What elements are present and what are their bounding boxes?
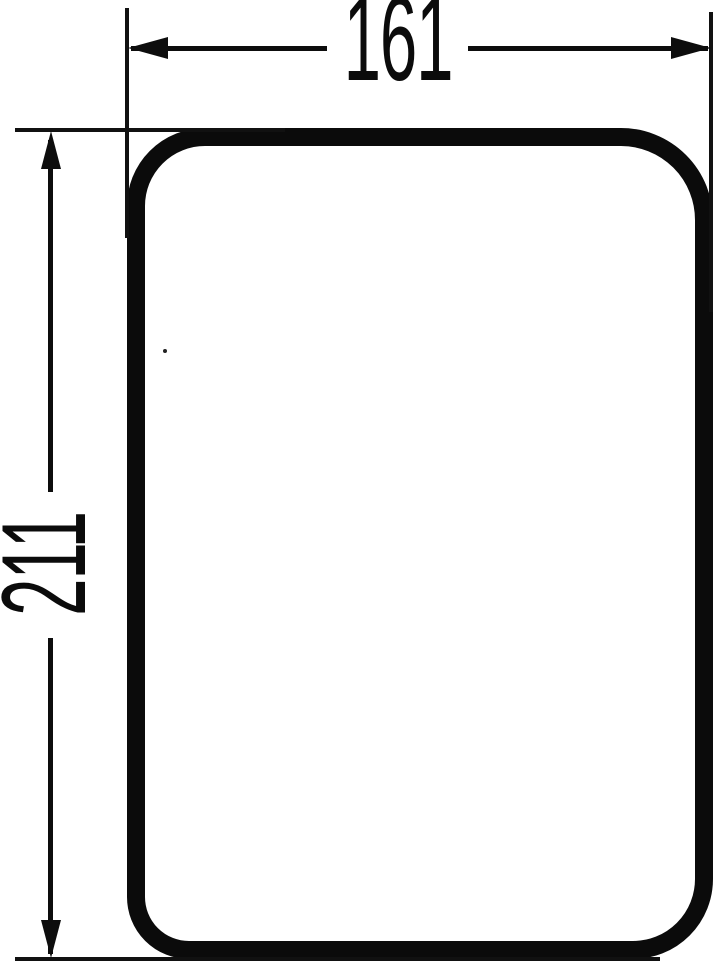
- height-dimension-line-top-segment: [48, 140, 53, 492]
- arrow-right-icon: [671, 37, 711, 59]
- height-dimension-line-bottom-segment: [48, 638, 53, 954]
- technical-drawing-canvas: 161 211: [0, 0, 720, 968]
- part-outline: [127, 128, 713, 959]
- height-dimension-label: 211: [0, 512, 104, 616]
- width-dimension-label: 161: [344, 0, 453, 99]
- arrow-up-icon: [41, 131, 61, 169]
- arrow-left-icon: [128, 37, 168, 59]
- arrow-down-icon: [41, 920, 61, 958]
- height-extension-line-bottom: [15, 957, 660, 961]
- scan-speck-dot: [163, 349, 167, 353]
